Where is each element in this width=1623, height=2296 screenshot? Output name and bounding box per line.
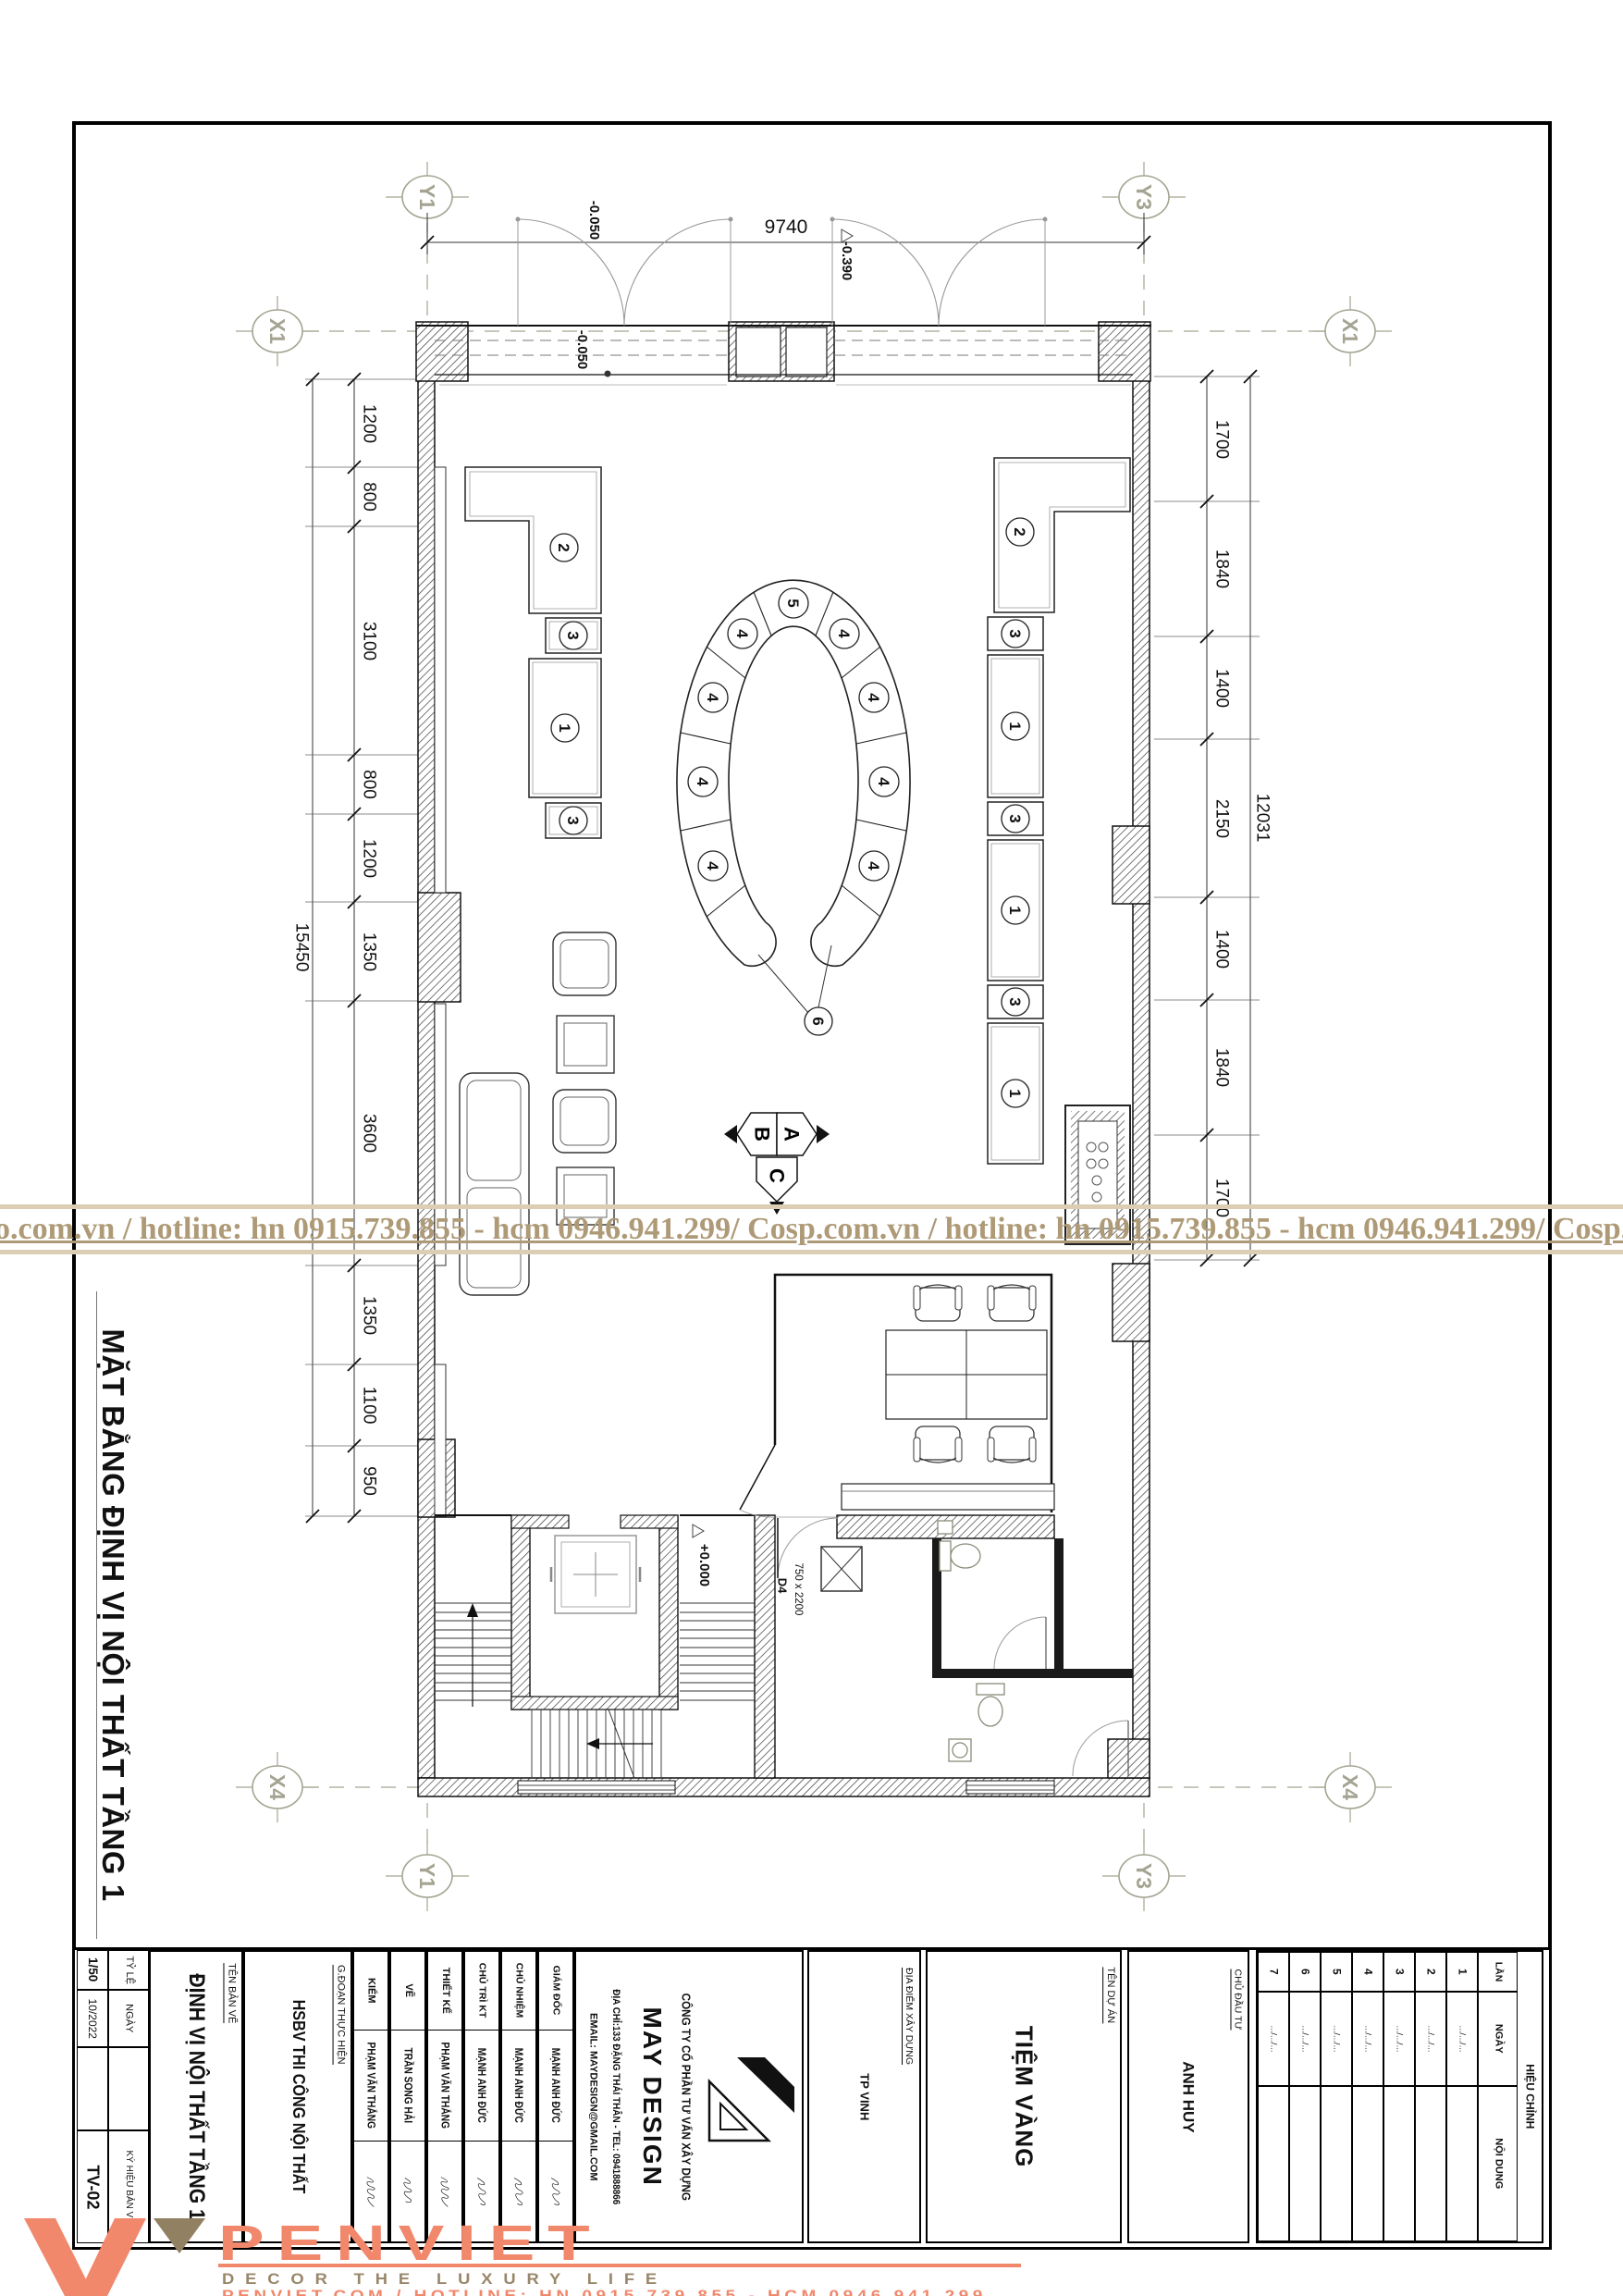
rev-content	[1415, 2086, 1446, 2241]
dim-label: 800	[359, 770, 378, 799]
dim-label: 800	[359, 482, 378, 512]
rev-content	[1258, 2086, 1289, 2241]
callout: 2	[1011, 527, 1028, 536]
rev-date: .../.../...	[1321, 1992, 1352, 2086]
callout: 4	[875, 777, 892, 786]
grid-label-y1-bottom: Y1	[415, 1863, 439, 1889]
dim-label: 3600	[359, 1114, 378, 1153]
grid-label-x4-left: X4	[265, 1774, 289, 1800]
grid-label-y3-top: Y3	[1132, 184, 1156, 210]
rev-no: 5	[1321, 1952, 1352, 1992]
level-label: -0.390	[839, 241, 855, 281]
tb-phase-cell: G.ĐOẠN THỰC HIỆN HSBV THI CÔNG NỘI THẤT	[243, 1950, 352, 2243]
tb-staff-name: MẠNH ANH ĐỨC	[539, 2031, 572, 2142]
grid-label-y3-bottom: Y3	[1132, 1863, 1156, 1889]
rev-date: .../.../...	[1446, 1992, 1478, 2086]
tb-staff-role: VẼ	[391, 1952, 424, 2031]
sheet-frame	[74, 123, 1550, 2248]
tb-staff-name: MẠNH ANH ĐỨC	[502, 2031, 535, 2142]
stair-treads-right	[680, 1603, 755, 1700]
grid-label-y1-top: Y1	[415, 184, 439, 210]
tb-scale-value: 1/50	[77, 1950, 108, 1990]
callout: 4	[694, 777, 711, 786]
tb-staff-ve: VẼ TRẦN SONG HẢI	[389, 1950, 426, 2243]
stair-core	[435, 1515, 1133, 1794]
rev-content	[1383, 2086, 1415, 2241]
wall-display-niche	[1065, 1105, 1130, 1244]
brand-tagline: DECOR THE LUXURY LIFE	[222, 2270, 668, 2289]
callout: 4	[865, 861, 882, 870]
tb-staff-name: PHẠM VĂN THẮNG	[428, 2031, 461, 2142]
lounge-furniture	[460, 932, 616, 1295]
tb-site-cell: ĐỊA ĐIỂM XÂY DỰNG TP VINH	[807, 1950, 921, 2243]
callout: 5	[784, 599, 802, 607]
rev-no: 3	[1383, 1952, 1415, 1992]
dim-label-left-total: 15450	[291, 923, 311, 972]
tb-phase: HSBV THI CÔNG NỘI THẤT	[245, 1952, 350, 2241]
sofa	[460, 1073, 529, 1295]
dim-label: 1840	[1211, 549, 1231, 588]
tb-company-email: EMAIL: MAYDESIGN@GMAIL.COM	[582, 1952, 604, 2241]
callout: 6	[809, 1017, 827, 1025]
office-area	[740, 1275, 1054, 1517]
sheet-title-vertical: MẶT BẰNG ĐỊNH VỊ NỘI THẤT TẦNG 1	[96, 1291, 129, 1939]
rev-content	[1446, 2086, 1478, 2241]
horseshoe-display	[677, 580, 910, 1014]
callout: 4	[704, 693, 721, 702]
dim-label: 950	[359, 1466, 378, 1496]
tb-revision-table: 7 6 5 4 3 2 1 LẦN .../.../... .../.../..…	[1256, 1950, 1543, 2243]
tb-empty-cell	[77, 2047, 108, 2130]
tb-client: ANH HUY	[1129, 1952, 1248, 2241]
rev-date: .../.../...	[1415, 1992, 1446, 2086]
callout-bubbles: 2 3 1 3 2 3 1 3 1 3 1 5 4 4 4 4 4 4 4 4 …	[550, 518, 1034, 1107]
callout: 4	[835, 629, 853, 638]
reception-counter	[842, 1484, 1054, 1510]
rev-col-no: LẦN	[1478, 1952, 1518, 1992]
tb-client-cell: CHỦ ĐẦU TƯ ANH HUY	[1127, 1950, 1249, 2243]
tb-staff-role: KIỂM	[354, 1952, 387, 2031]
may-design-logo	[704, 2055, 796, 2148]
drawing-sheet: Y1 Y3 X1 X1 Y1 Y3 X4 X4 9740 1200 800 31…	[0, 0, 1623, 2296]
dim-label: 1200	[359, 404, 378, 443]
rev-date: .../.../...	[1258, 1992, 1289, 2086]
dim-label: 1400	[1211, 930, 1231, 969]
tb-company-type: CÔNG TY CỔ PHẦN TƯ VẤN XÂY DỰNG	[674, 1952, 698, 2241]
toilet-fixtures	[938, 1521, 1004, 1761]
tb-staff-role: CHỦ TRÌ KT	[465, 1952, 498, 2031]
door-size: 750 x 2200	[793, 1563, 804, 1616]
rev-date: .../.../...	[1289, 1992, 1321, 2086]
rev-content	[1289, 2086, 1321, 2241]
dim-label-top-width: 9740	[765, 216, 808, 238]
callout: 3	[1006, 997, 1024, 1006]
rev-no: 6	[1289, 1952, 1321, 1992]
title-block: 1/50 TỶ LỆ 10/2022 NGÀY TV-02 KÝ HIỆU BẢ…	[72, 1947, 1552, 2250]
tb-staff-giamdoc: GIÁM ĐỐC MẠNH ANH ĐỨC	[537, 1950, 574, 2243]
grid-label-x4-right: X4	[1338, 1774, 1362, 1800]
tb-empty-cell	[108, 2047, 149, 2130]
callout: 1	[1006, 722, 1024, 730]
rev-content	[1321, 2086, 1352, 2241]
penviet-logo	[22, 2215, 213, 2296]
dim-label: 1100	[359, 1387, 378, 1425]
grid-label-x1-left: X1	[265, 318, 289, 344]
dim-label: 2150	[1211, 799, 1231, 838]
callout: 1	[556, 723, 573, 732]
tb-staff-kiem: KIỂM PHẠM VĂN THẮNG	[352, 1950, 389, 2243]
tb-staff-role: THIẾT KẾ	[428, 1952, 461, 2031]
compass-symbol: B A C	[724, 1113, 830, 1215]
tb-staff-thietke: THIẾT KẾ PHẠM VĂN THẮNG	[426, 1950, 463, 2243]
tb-project: TIỆM VÀNG	[928, 1952, 1120, 2241]
tb-date-label: NGÀY	[108, 1990, 149, 2047]
dim-label: 1700	[1211, 420, 1231, 459]
callout: 2	[555, 543, 572, 551]
compass-b: B	[750, 1127, 773, 1142]
tb-staff-name: PHẠM VĂN THẮNG	[354, 2031, 387, 2142]
dim-label: 1400	[1211, 669, 1231, 708]
rev-no: 2	[1415, 1952, 1446, 1992]
callout: 4	[704, 861, 721, 870]
callout: 4	[865, 693, 882, 702]
dim-label: 1200	[359, 839, 378, 878]
dim-label: 3100	[359, 622, 378, 660]
rev-no: 4	[1352, 1952, 1383, 1992]
callout: 3	[564, 816, 582, 824]
tb-staff-role: GIÁM ĐỐC	[539, 1952, 572, 2031]
dim-label: 1700	[1211, 1179, 1231, 1217]
tb-drawing-name-cell: TÊN BẢN VẼ ĐỊNH VỊ NỘI THẤT TẦNG 1	[149, 1950, 243, 2243]
tb-site: TP VINH	[809, 1952, 919, 2241]
dim-label: 1840	[1211, 1048, 1231, 1087]
level-label: +0.000	[696, 1544, 712, 1586]
callout: 1	[1006, 1089, 1024, 1097]
display-cabinets-left	[465, 467, 601, 838]
callout: 3	[1006, 629, 1024, 637]
rev-date: .../.../...	[1352, 1992, 1383, 2086]
tb-staff-name: MẠNH ANH ĐỨC	[465, 2031, 498, 2142]
rev-content	[1352, 2086, 1383, 2241]
tb-company-cell: EMAIL: MAYDESIGN@GMAIL.COM ĐỊA CHỈ:133 Đ…	[574, 1950, 804, 2243]
callout: 3	[1006, 814, 1024, 822]
tb-drawing-name: ĐỊNH VỊ NỘI THẤT TẦNG 1	[151, 1952, 241, 2241]
tb-company-address: ĐỊA CHỈ:133 ĐẶNG THÁI THÂN - TEL: 094188…	[604, 1952, 626, 2241]
rev-date: .../.../...	[1383, 1992, 1415, 2086]
brand-rule	[218, 2264, 1021, 2267]
dim-label-right-total: 12031	[1252, 794, 1272, 843]
right-dimension-chain: 1700 1840 1400 2150 1400 1840 1700 12031	[1154, 370, 1272, 1266]
left-dimension-chain: 1200 800 3100 800 1200 1350 3600 1350 11…	[291, 373, 418, 1523]
compass-a: A	[780, 1127, 803, 1142]
level-label: -0.050	[574, 330, 590, 370]
callout: 3	[564, 631, 582, 639]
tb-company-name: MAY DESIGN	[632, 1952, 672, 2241]
callout: 4	[733, 629, 751, 638]
tb-project-cell: TÊN DỰ ÁN TIỆM VÀNG	[926, 1950, 1122, 2243]
callout: 1	[1006, 906, 1024, 914]
rev-title: HIỆU CHỈNH	[1518, 1952, 1542, 2241]
rev-no: 1	[1446, 1952, 1478, 1992]
tb-staff-name: TRẦN SONG HẢI	[391, 2031, 424, 2142]
level-label: -0.050	[586, 201, 602, 241]
door-code: D4	[775, 1578, 789, 1594]
tb-staff-role: CHỦ NHIỆM	[502, 1952, 535, 2031]
rev-col-date: NGÀY	[1478, 1992, 1518, 2086]
tb-scale-label: TỶ LỆ	[108, 1950, 149, 1990]
rev-no: 7	[1258, 1952, 1289, 1992]
dim-label: 1350	[359, 932, 378, 971]
compass-c: C	[765, 1168, 788, 1183]
dim-label: 1350	[359, 1296, 378, 1335]
tb-date-value: 10/2022	[77, 1990, 108, 2047]
tb-staff-chunhiem: CHỦ NHIỆM MẠNH ANH ĐỨC	[500, 1950, 537, 2243]
grid-label-x1-right: X1	[1338, 318, 1362, 344]
brand-contact: PENVIET.COM / HOTLINE: HN 0915.739.855 -…	[222, 2287, 987, 2296]
tb-staff-chutri: CHỦ TRÌ KT MẠNH ANH ĐỨC	[463, 1950, 500, 2243]
rev-col-content: NỘI DUNG	[1478, 2086, 1518, 2241]
